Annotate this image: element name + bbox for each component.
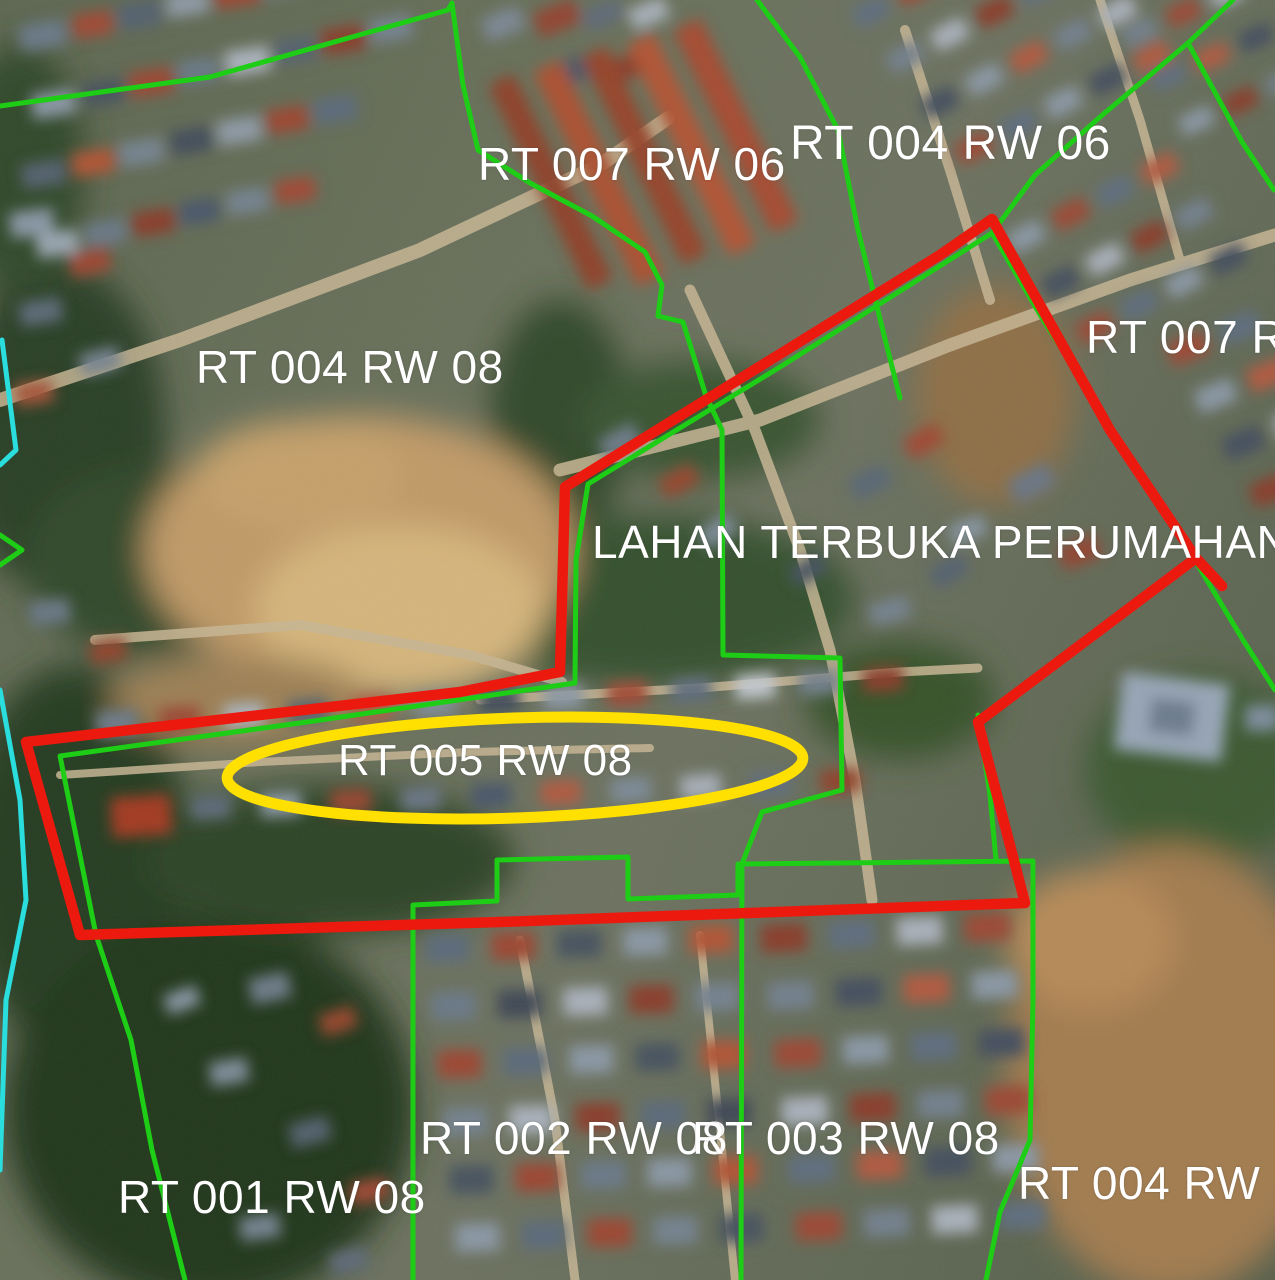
label-rt-005-rw-08: RT 005 RW 08 xyxy=(338,737,633,785)
satellite-map: RT 007 RW 06 RT 004 RW 06 RT 004 RW 08 R… xyxy=(0,0,1275,1280)
label-lahan-terbuka-perumahan: LAHAN TERBUKA PERUMAHAN xyxy=(592,517,1275,568)
label-rt-003-rw-08: RT 003 RW 08 xyxy=(692,1113,1000,1164)
map-canvas xyxy=(0,0,1275,1280)
label-rt-001-rw-08: RT 001 RW 08 xyxy=(118,1172,426,1223)
label-rt-002-rw-08: RT 002 RW 08 xyxy=(420,1113,728,1164)
label-rt-004-rw-06: RT 004 RW 06 xyxy=(790,118,1111,171)
label-rt-007-rw-right: RT 007 RW xyxy=(1086,312,1275,363)
label-rt-004-rw-08: RT 004 RW 08 xyxy=(196,342,504,393)
label-rt-007-rw-06: RT 007 RW 06 xyxy=(478,139,786,190)
label-rt-004-rw-bottom: RT 004 RW xyxy=(1018,1158,1260,1209)
